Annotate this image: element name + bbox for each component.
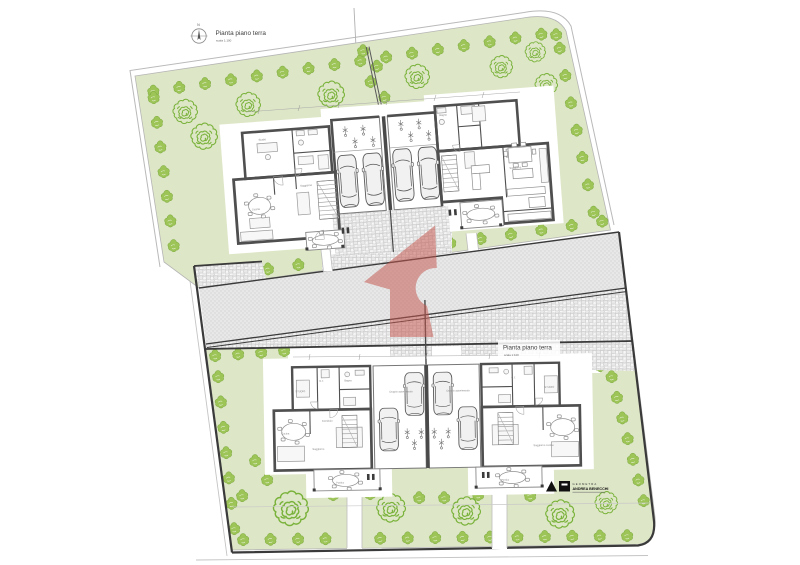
svg-text:STUDIO: STUDIO	[544, 385, 554, 389]
svg-text:scala 1:100: scala 1:100	[216, 39, 232, 43]
svg-text:Soggiorno: Soggiorno	[312, 447, 324, 451]
svg-text:C.T.: C.T.	[319, 379, 324, 383]
svg-text:Bagno: Bagno	[439, 113, 447, 118]
svg-text:GEOMETRA: GEOMETRA	[573, 482, 598, 486]
svg-text:Doppio autorimessa: Doppio autorimessa	[389, 389, 413, 393]
svg-text:Pianta piano terra: Pianta piano terra	[503, 345, 552, 352]
svg-text:Cucina: Cucina	[252, 207, 261, 212]
svg-text:scala 1:100: scala 1:100	[504, 353, 519, 357]
svg-text:Portico: Portico	[336, 480, 345, 484]
svg-text:Bagno: Bagno	[344, 378, 352, 382]
svg-text:ANDREA BENECCHI: ANDREA BENECCHI	[573, 487, 609, 491]
svg-text:C.T.: C.T.	[511, 375, 516, 379]
svg-text:Corridoio: Corridoio	[322, 419, 333, 423]
svg-text:STUDIO: STUDIO	[295, 389, 305, 393]
svg-text:Pianta piano terra: Pianta piano terra	[216, 30, 267, 37]
svg-text:Soggiorno cucina: Soggiorno cucina	[533, 443, 554, 447]
svg-text:Cucina: Cucina	[281, 431, 290, 435]
svg-text:Studio: Studio	[258, 137, 266, 142]
svg-text:Doppio autorimessa: Doppio autorimessa	[446, 388, 470, 392]
svg-text:Portico: Portico	[501, 478, 510, 482]
